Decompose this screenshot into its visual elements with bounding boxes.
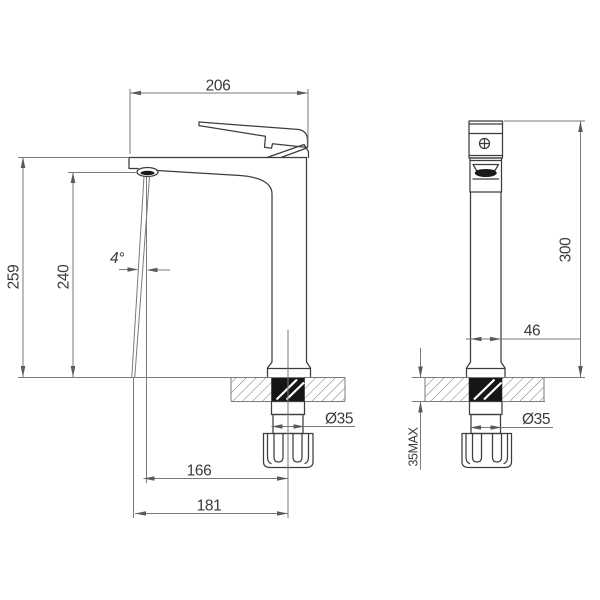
total-height-dimension-label: 259 [6, 265, 23, 290]
aerator [137, 168, 158, 177]
front-view: 206 259 240 4° 166 181 Ø35 [6, 78, 356, 519]
stream-angle-dimension-label: 4° [110, 250, 124, 267]
handle-lever [199, 122, 308, 148]
drawing-svg: 206 259 240 4° 166 181 Ø35 [0, 0, 600, 600]
front-dimension-lines [18, 89, 355, 518]
spout-height-dimension-label: 240 [56, 264, 73, 289]
threaded-shank-side [469, 378, 502, 402]
set-screw-icon [480, 139, 490, 149]
body-width-dimension-label: 46 [524, 323, 540, 340]
reach-overall-dimension-label: 181 [197, 498, 222, 515]
shank-diameter-side-label: Ø35 [522, 411, 550, 428]
faucet-body-front [129, 158, 311, 378]
front-dimension-arrows [21, 91, 308, 516]
spout-outlet [475, 169, 497, 177]
side-view: 46 300 Ø35 35MAX [407, 121, 586, 470]
stem-and-nut-side [462, 402, 512, 468]
reach-aerator-dimension-label: 166 [187, 463, 212, 480]
technical-drawing: 206 259 240 4° 166 181 Ø35 [0, 0, 600, 600]
height-dimension-label: 300 [558, 237, 575, 262]
spout-width-dimension-label: 206 [206, 78, 231, 95]
water-stream [132, 177, 150, 519]
side-dimension-lines [421, 121, 586, 470]
shank-diameter-front-label: Ø35 [325, 411, 353, 428]
max-counter-thickness-label: 35MAX [407, 426, 421, 466]
